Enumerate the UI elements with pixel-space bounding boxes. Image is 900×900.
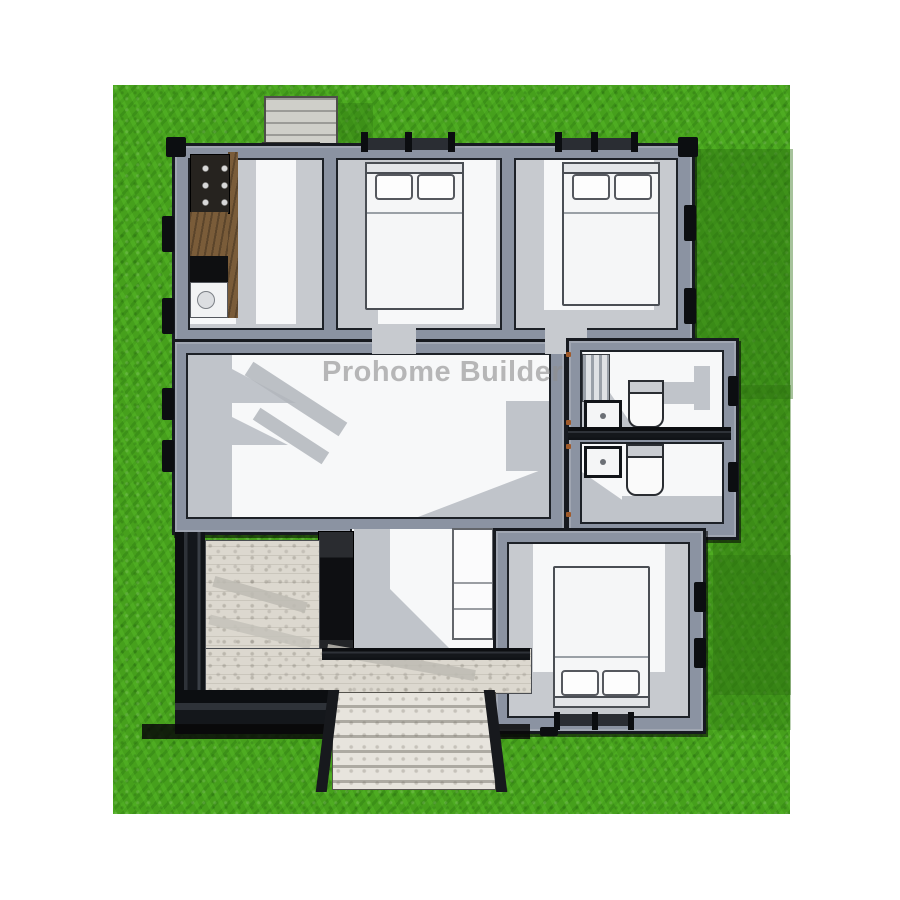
window-nub [694,582,706,612]
wall-shadow [506,401,549,471]
doorway [372,326,416,354]
toilet-tank [626,444,664,458]
cabinet [452,528,494,640]
toilet-tank [628,380,664,394]
open-door [318,531,354,660]
window-nub [684,288,696,324]
blanket-line [367,212,462,214]
headboard [553,696,650,708]
wall-shadow [622,496,722,522]
wall-shadow [390,589,450,649]
window-nub [694,638,706,668]
window-post [405,132,412,152]
kitchen-sink [190,282,228,318]
window-nub [728,376,738,406]
window-post [628,712,634,730]
sink-bowl-icon [197,291,215,309]
wall-shadow [418,467,549,517]
porch-inner-wall [322,648,530,660]
pillow [375,174,413,200]
pillow [602,670,640,696]
shower-mat [582,354,610,402]
beam-shadow [212,576,307,613]
corner-block [678,137,698,157]
wall-shadow [354,529,390,649]
corner-block [166,137,186,157]
door-hinge [566,420,571,425]
window-post [555,132,562,152]
window-nub [684,205,696,241]
window-nub [728,462,738,492]
blanket-line [564,212,658,214]
window-post [591,132,598,152]
window-nub [162,388,174,420]
back-steps [264,96,338,148]
front-stairs [332,692,496,790]
headboard [562,162,660,174]
window-post [592,712,598,730]
window-nub [162,440,174,472]
window-nub [162,298,174,334]
bathroom-sink [584,446,622,478]
wall-bracket [540,727,558,736]
window-post [631,132,638,152]
pillow [417,174,455,200]
window-post [448,132,455,152]
counter [694,366,710,410]
drain-icon [600,413,606,419]
toilet [628,380,664,428]
pillow [614,174,652,200]
wall-shadow [188,355,232,517]
kitchen-stove [190,154,230,214]
kitchen-oven [190,256,228,282]
watermark-text: Prohome Builder [322,356,563,389]
door-hinge [566,444,571,449]
kitchen-counter [190,212,228,256]
door-hinge [566,512,571,517]
door-hinge [566,352,571,357]
toilet [626,444,664,496]
window-post [361,132,368,152]
bed [365,166,464,310]
pillow [572,174,610,200]
bed [562,166,660,306]
floor-highlight [256,160,296,324]
floor-plan-render: Prohome Builder [0,0,900,900]
headboard [365,162,464,174]
blanket-line [555,656,648,658]
bathroom-divider-wall [568,427,731,440]
pillow [561,670,599,696]
window-nub [162,216,174,252]
beam-shadow [208,615,311,650]
drain-icon [600,459,606,465]
bed [553,566,650,704]
